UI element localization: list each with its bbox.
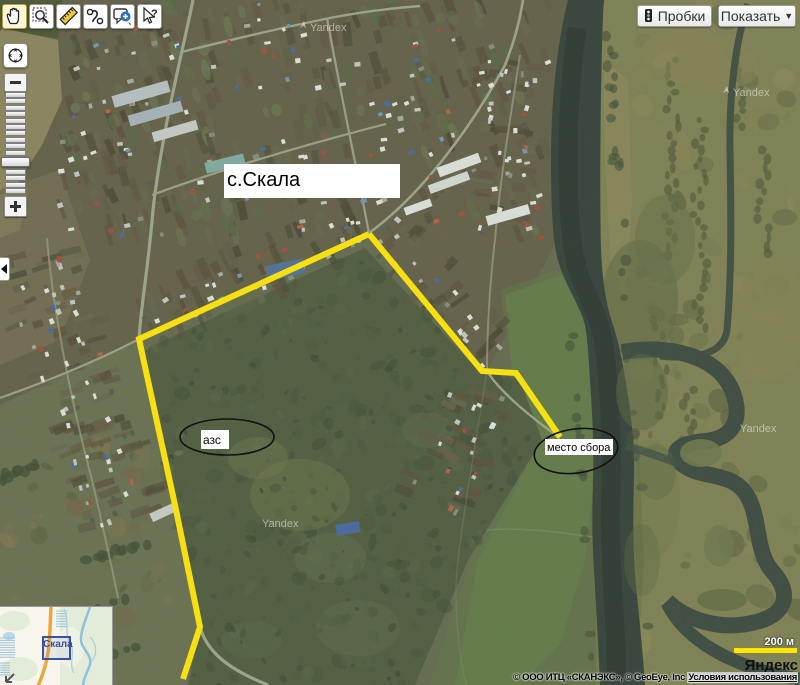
svg-text:азс: азс (203, 433, 221, 447)
svg-text:место сбора: место сбора (547, 442, 611, 454)
svg-text:с.Скала: с.Скала (227, 169, 301, 191)
svg-text:Скала: Скала (43, 639, 73, 650)
svg-text:Yandex: Yandex (310, 22, 347, 34)
svg-text:Yandex: Yandex (733, 87, 770, 99)
svg-text:Yandex: Yandex (262, 518, 299, 530)
svg-text:?: ? (151, 8, 158, 20)
svg-text:Yandex: Yandex (740, 423, 777, 435)
